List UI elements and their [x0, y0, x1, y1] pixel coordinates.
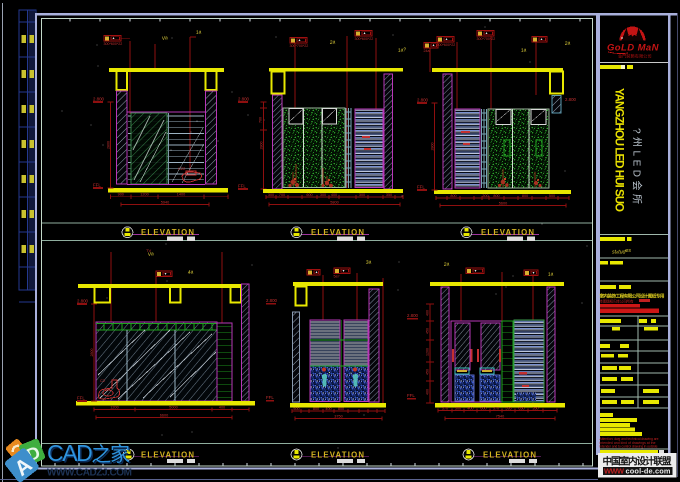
svg-text:YANGZHOU LED HUI SUO: YANGZHOU LED HUI SUO [613, 88, 625, 212]
svg-text:FFL: FFL [407, 393, 415, 398]
svg-text:7540: 7540 [496, 415, 504, 419]
svg-text:570: 570 [442, 406, 448, 410]
svg-text:300: 300 [268, 193, 274, 197]
svg-text:GoLD MaN: GoLD MaN [607, 43, 660, 54]
svg-text:金門装飾有限公司: 金門装飾有限公司 [618, 53, 652, 60]
svg-text:600: 600 [306, 193, 312, 197]
svg-text:450: 450 [426, 369, 430, 375]
svg-text:500: 500 [549, 194, 555, 198]
svg-text:300: 300 [320, 193, 326, 197]
svg-text:2800: 2800 [107, 141, 111, 149]
svg-text:ELEVATION: ELEVATION [311, 228, 364, 237]
svg-text:ELEVATION: ELEVATION [311, 450, 364, 459]
svg-text:300*700*22: 300*700*22 [290, 44, 309, 48]
svg-text:700: 700 [279, 193, 285, 197]
svg-text:5a?: 5a? [334, 275, 340, 279]
svg-text:intender and to control drawin: intender and to control drawing in outsi… [600, 445, 658, 449]
svg-text:350: 350 [532, 406, 538, 410]
svg-text:400: 400 [467, 406, 473, 410]
svg-text:2.800: 2.800 [565, 97, 577, 102]
svg-text:800: 800 [313, 407, 319, 411]
svg-text:450: 450 [426, 328, 430, 334]
svg-text:ELEVATION: ELEVATION [141, 228, 194, 237]
svg-text:1200: 1200 [140, 193, 148, 197]
svg-text:400: 400 [325, 407, 331, 411]
svg-text:500: 500 [455, 406, 461, 410]
svg-text:1200: 1200 [426, 348, 430, 356]
svg-text:1a: 1a [195, 29, 202, 36]
svg-text:1400: 1400 [177, 193, 185, 197]
svg-text:5800: 5800 [330, 201, 338, 205]
svg-text:800: 800 [450, 194, 456, 198]
svg-text:cool-de.com: cool-de.com [626, 467, 671, 476]
svg-text:3a: 3a [365, 259, 372, 266]
svg-text:5940: 5940 [161, 201, 169, 205]
svg-text:3750: 3750 [334, 415, 342, 419]
svg-text:2a: 2a [442, 261, 450, 268]
svg-text:FFL: FFL [417, 185, 425, 190]
svg-text:ELEVATION: ELEVATION [141, 450, 194, 459]
svg-text:600: 600 [480, 406, 486, 410]
svg-text:400: 400 [219, 405, 225, 409]
svg-text:800: 800 [493, 194, 499, 198]
svg-text:FFL: FFL [77, 396, 85, 401]
svg-text:400: 400 [426, 389, 430, 395]
svg-text:5600: 5600 [499, 202, 507, 206]
svg-text:400: 400 [426, 310, 430, 316]
svg-text:400: 400 [331, 193, 337, 197]
svg-text:4a: 4a [187, 269, 194, 276]
svg-text:300: 300 [359, 193, 365, 197]
svg-text:900: 900 [118, 193, 124, 197]
svg-text:350: 350 [386, 193, 392, 197]
svg-text:FFL: FFL [93, 183, 101, 188]
svg-text:Va: Va [161, 35, 168, 42]
svg-text:2800: 2800 [90, 349, 94, 357]
svg-text:700: 700 [259, 117, 263, 123]
svg-text:1a: 1a [547, 271, 554, 278]
svg-text:300: 300 [482, 194, 488, 198]
svg-text:5000: 5000 [169, 405, 177, 409]
svg-text:300*600*22: 300*600*22 [104, 42, 123, 46]
svg-text:C2: C2 [100, 378, 106, 383]
svg-text:ELEVATION: ELEVATION [481, 228, 534, 237]
svg-text:1200: 1200 [110, 405, 118, 409]
svg-text:C22: C22 [178, 166, 186, 171]
svg-text:2.800: 2.800 [238, 97, 250, 102]
svg-text:800: 800 [338, 407, 344, 411]
svg-text:650: 650 [518, 406, 524, 410]
svg-text:2800: 2800 [260, 142, 264, 150]
svg-text:2800: 2800 [431, 143, 435, 151]
svg-text:2.800: 2.800 [77, 299, 89, 304]
svg-text:ELEVATION: ELEVATION [483, 450, 536, 459]
svg-text:WWW.CADZJ.COM: WWW.CADZJ.COM [47, 468, 132, 479]
svg-text:2a: 2a [328, 39, 336, 46]
svg-text:1a: 1a [520, 47, 527, 54]
svg-text:300*700*22: 300*700*22 [477, 37, 496, 41]
svg-text:6600: 6600 [160, 414, 168, 418]
svg-text:室内装饰工程有限公司设计图纸专用: 室内装饰工程有限公司设计图纸专用 [600, 293, 665, 300]
svg-text:2.800: 2.800 [266, 298, 278, 303]
svg-text:2.800: 2.800 [93, 97, 105, 102]
svg-text:FFL: FFL [238, 184, 246, 189]
svg-text:2.800: 2.800 [417, 98, 429, 103]
svg-text:300*600*22: 300*600*22 [437, 43, 456, 47]
svg-text:CAD之家: CAD之家 [47, 440, 130, 466]
svg-text:2a: 2a [563, 40, 571, 47]
svg-text:WWW: WWW [604, 467, 624, 476]
svg-text:500: 500 [293, 407, 299, 411]
svg-text:Va: Va [147, 251, 154, 258]
svg-text:1a?: 1a? [397, 47, 406, 54]
svg-text:300*600*22: 300*600*22 [355, 37, 374, 41]
svg-text:2.800: 2.800 [407, 313, 419, 318]
svg-text:24a: 24a [424, 49, 430, 53]
svg-text:FFL: FFL [266, 395, 274, 400]
svg-text:570: 570 [493, 406, 499, 410]
svg-text:本图版权归本公司所有: 本图版权归本公司所有 [600, 299, 634, 304]
svg-text:595: 595 [505, 406, 511, 410]
svg-text:800: 800 [522, 194, 528, 198]
